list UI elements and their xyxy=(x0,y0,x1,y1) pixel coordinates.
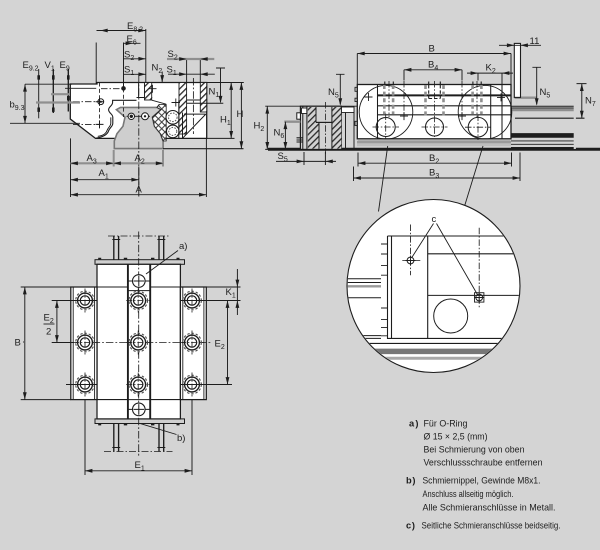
svg-text:a): a) xyxy=(179,241,187,252)
svg-text:H: H xyxy=(237,109,244,120)
svg-text:Für O-Ring: Für O-Ring xyxy=(424,419,468,429)
svg-text:c): c) xyxy=(406,520,415,530)
svg-text:Alle Schmieranschlüsse in Meta: Alle Schmieranschlüsse in Metall. xyxy=(423,502,556,512)
svg-text:c: c xyxy=(432,214,437,225)
svg-text:Anschluss allseitig möglich.: Anschluss allseitig möglich. xyxy=(423,489,514,499)
svg-text:Seitliche Schmieranschlüsse be: Seitliche Schmieranschlüsse beidseitig. xyxy=(422,520,561,530)
svg-text:Ø 15 × 2,5 (mm): Ø 15 × 2,5 (mm) xyxy=(424,432,488,442)
svg-text:B·: B· xyxy=(15,337,26,349)
svg-text:Schmiernippel, Gewinde M8x1.: Schmiernippel, Gewinde M8x1. xyxy=(423,476,541,486)
svg-text:b): b) xyxy=(177,433,185,444)
svg-text:b): b) xyxy=(406,476,416,486)
svg-text:2: 2 xyxy=(46,327,51,338)
svg-text:Verschlussschraube entfernen: Verschlussschraube entfernen xyxy=(424,458,543,468)
svg-text:Bei Schmierung von oben: Bei Schmierung von oben xyxy=(424,445,525,455)
svg-text:a): a) xyxy=(409,419,419,429)
svg-text:A: A xyxy=(136,185,143,196)
svg-text:B: B xyxy=(429,44,435,55)
svg-text:11: 11 xyxy=(530,36,540,47)
